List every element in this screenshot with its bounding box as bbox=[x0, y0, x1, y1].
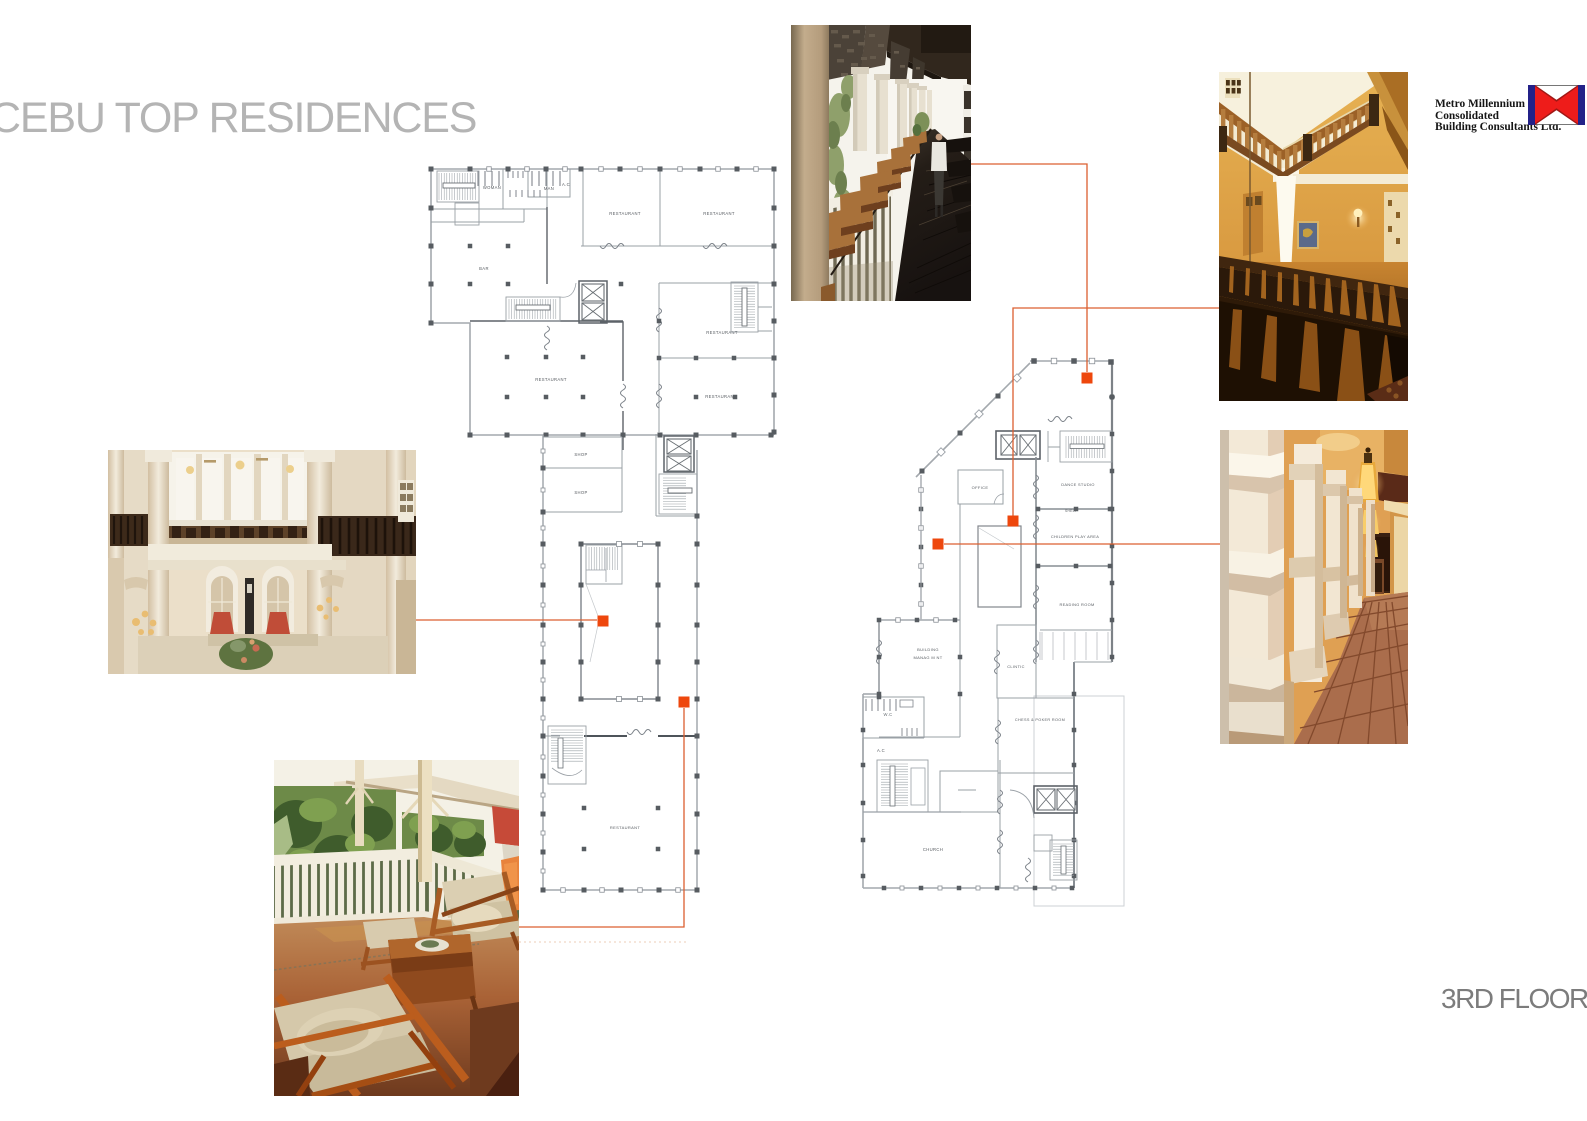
svg-text:RESTAURANT: RESTAURANT bbox=[610, 825, 641, 830]
svg-text:RESTAURANT: RESTAURANT bbox=[535, 377, 567, 382]
svg-text:MANAG M NT: MANAG M NT bbox=[913, 655, 942, 660]
svg-text:BAR: BAR bbox=[479, 266, 489, 271]
svg-text:DANCE STUDIO: DANCE STUDIO bbox=[1061, 482, 1095, 487]
svg-text:A.C: A.C bbox=[877, 748, 885, 753]
svg-text:RESTAURANT: RESTAURANT bbox=[706, 330, 738, 335]
svg-text:CLINTIC: CLINTIC bbox=[1007, 664, 1025, 669]
svg-text:RESTAURANT: RESTAURANT bbox=[703, 211, 735, 216]
svg-text:RESTAURANT: RESTAURANT bbox=[609, 211, 641, 216]
svg-text:RESTAURANT: RESTAURANT bbox=[705, 394, 737, 399]
svg-text:OFFICE: OFFICE bbox=[972, 485, 989, 490]
svg-text:A.C: A.C bbox=[562, 182, 570, 187]
svg-text:BUILDING: BUILDING bbox=[917, 647, 939, 652]
svg-text:W.C: W.C bbox=[884, 712, 893, 717]
svg-text:READING ROOM: READING ROOM bbox=[1059, 602, 1094, 607]
svg-text:MAN: MAN bbox=[544, 186, 554, 191]
svg-text:WOMAN: WOMAN bbox=[483, 185, 501, 190]
svg-text:CHURCH: CHURCH bbox=[923, 847, 943, 852]
svg-text:SHOP: SHOP bbox=[574, 490, 587, 495]
svg-text:SHOP: SHOP bbox=[574, 452, 587, 457]
svg-text:CHILDREN PLAY AREA: CHILDREN PLAY AREA bbox=[1051, 534, 1099, 539]
svg-text:CHESS & POKER ROOM: CHESS & POKER ROOM bbox=[1015, 718, 1065, 722]
